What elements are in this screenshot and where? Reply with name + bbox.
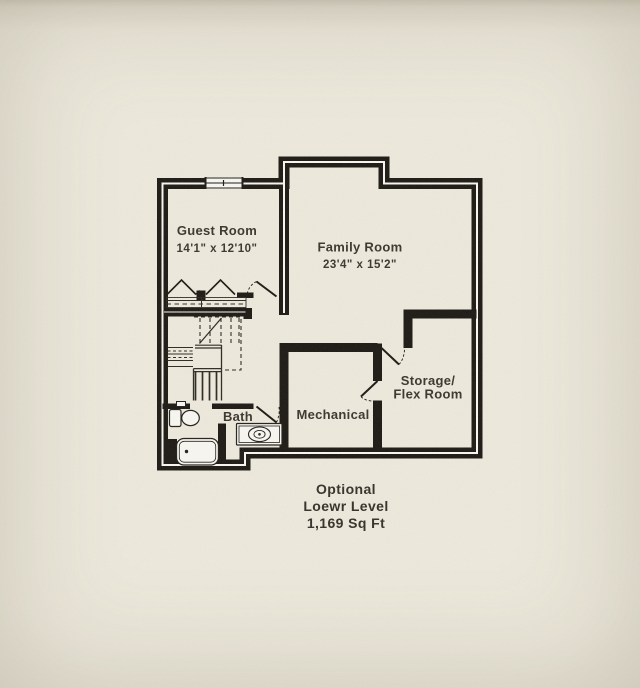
- paper-texture: [0, 0, 640, 688]
- floorplan-drawing: Guest Room 14'1" x 12'10" Family Room 23…: [0, 0, 640, 688]
- floorplan-page: Guest Room 14'1" x 12'10" Family Room 23…: [0, 0, 640, 688]
